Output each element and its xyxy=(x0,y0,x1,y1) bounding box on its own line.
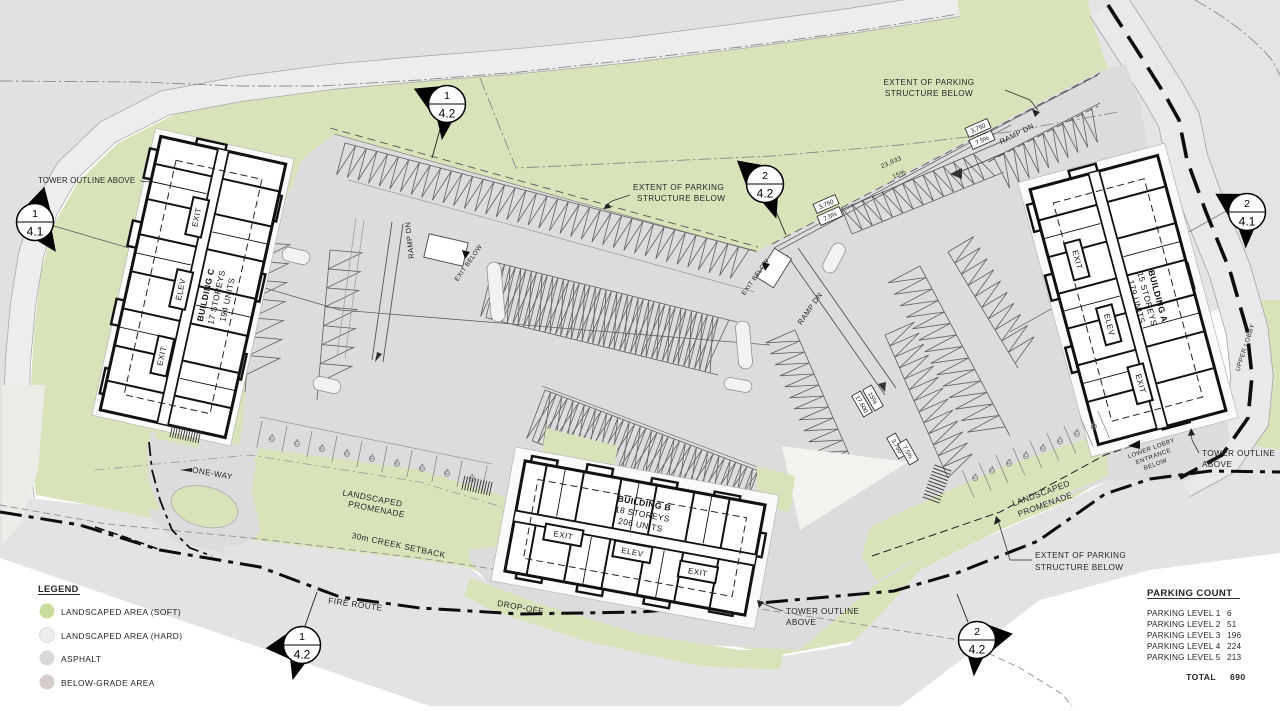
svg-text:196: 196 xyxy=(1227,631,1242,640)
svg-text:EXTENT OF PARKING: EXTENT OF PARKING xyxy=(883,78,974,87)
svg-text:STRUCTURE BELOW: STRUCTURE BELOW xyxy=(637,194,725,203)
svg-text:PARKING LEVEL 4: PARKING LEVEL 4 xyxy=(1147,642,1221,651)
svg-text:LANDSCAPED AREA (SOFT): LANDSCAPED AREA (SOFT) xyxy=(61,607,181,617)
svg-text:6: 6 xyxy=(1227,609,1232,618)
svg-text:4.2: 4.2 xyxy=(969,643,986,657)
svg-text:224: 224 xyxy=(1227,642,1242,651)
svg-text:4.2: 4.2 xyxy=(757,187,774,201)
svg-text:TOTAL: TOTAL xyxy=(1186,672,1216,682)
svg-text:ABOVE: ABOVE xyxy=(786,618,816,627)
svg-text:LANDSCAPED AREA (HARD): LANDSCAPED AREA (HARD) xyxy=(61,631,182,641)
svg-text:LEGEND: LEGEND xyxy=(38,584,79,594)
svg-text:4.1: 4.1 xyxy=(27,225,44,239)
svg-text:4.1: 4.1 xyxy=(1239,215,1256,229)
svg-text:TOWER OUTLINE ABOVE: TOWER OUTLINE ABOVE xyxy=(38,176,135,185)
svg-text:PARKING LEVEL 5: PARKING LEVEL 5 xyxy=(1147,653,1221,662)
svg-text:PARKING LEVEL 3: PARKING LEVEL 3 xyxy=(1147,631,1221,640)
svg-text:STRUCTURE BELOW: STRUCTURE BELOW xyxy=(1035,563,1123,572)
svg-text:STRUCTURE BELOW: STRUCTURE BELOW xyxy=(885,89,973,98)
svg-text:2: 2 xyxy=(1244,198,1250,210)
svg-text:ASPHALT: ASPHALT xyxy=(61,654,101,664)
svg-text:2: 2 xyxy=(762,170,768,182)
svg-text:1: 1 xyxy=(444,90,450,102)
svg-text:EXTENT OF PARKING: EXTENT OF PARKING xyxy=(1035,551,1126,560)
svg-text:51: 51 xyxy=(1227,620,1237,629)
svg-text:ABOVE: ABOVE xyxy=(1202,460,1232,469)
svg-text:690: 690 xyxy=(1230,672,1246,682)
svg-text:EXTENT OF PARKING: EXTENT OF PARKING xyxy=(633,183,724,192)
svg-text:4.2: 4.2 xyxy=(294,648,311,662)
svg-text:TOWER OUTLINE: TOWER OUTLINE xyxy=(786,607,859,616)
svg-text:4.2: 4.2 xyxy=(439,107,456,121)
svg-text:BELOW-GRADE AREA: BELOW-GRADE AREA xyxy=(61,678,155,688)
svg-text:PARKING COUNT: PARKING COUNT xyxy=(1147,588,1233,599)
svg-text:PARKING LEVEL 2: PARKING LEVEL 2 xyxy=(1147,620,1221,629)
svg-text:PARKING LEVEL 1: PARKING LEVEL 1 xyxy=(1147,609,1221,618)
svg-text:213: 213 xyxy=(1227,653,1242,662)
svg-text:1: 1 xyxy=(299,631,305,643)
svg-text:1: 1 xyxy=(32,208,38,220)
svg-text:2: 2 xyxy=(974,626,980,638)
svg-text:TOWER OUTLINE: TOWER OUTLINE xyxy=(1202,449,1275,458)
